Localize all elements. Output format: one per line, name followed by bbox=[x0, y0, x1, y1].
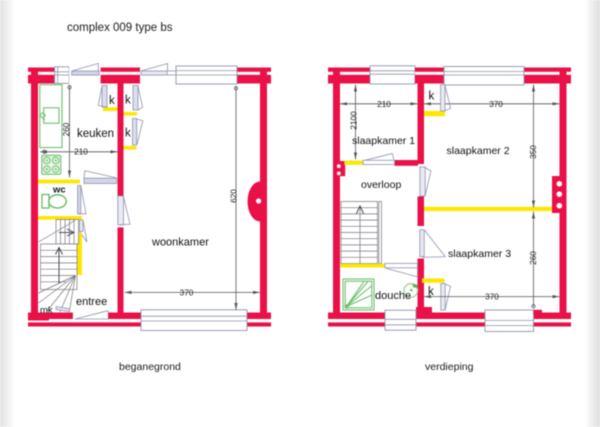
svg-text:slaapkamer 2: slaapkamer 2 bbox=[447, 145, 510, 157]
svg-text:260: 260 bbox=[528, 251, 538, 265]
svg-text:douche: douche bbox=[375, 290, 411, 302]
svg-text:entree: entree bbox=[76, 296, 107, 308]
svg-text:slaapkamer 3: slaapkamer 3 bbox=[448, 248, 511, 260]
svg-text:620: 620 bbox=[229, 189, 239, 203]
svg-text:k: k bbox=[429, 91, 435, 103]
svg-text:k: k bbox=[428, 286, 434, 298]
svg-text:k: k bbox=[109, 95, 115, 107]
svg-text:verdieping: verdieping bbox=[425, 361, 474, 373]
svg-text:210: 210 bbox=[377, 99, 391, 109]
svg-text:beganegrond: beganegrond bbox=[119, 361, 181, 373]
svg-text:k: k bbox=[125, 128, 131, 140]
svg-text:260: 260 bbox=[61, 122, 71, 136]
svg-text:slaapkamer 1: slaapkamer 1 bbox=[352, 135, 415, 147]
svg-text:370: 370 bbox=[489, 99, 503, 109]
svg-text:overloop: overloop bbox=[361, 179, 401, 191]
svg-text:woonkamer: woonkamer bbox=[151, 237, 209, 249]
svg-text:370: 370 bbox=[485, 292, 499, 302]
svg-text:keuken: keuken bbox=[77, 128, 114, 140]
svg-text:2100: 2100 bbox=[349, 111, 359, 130]
svg-text:wc: wc bbox=[52, 185, 66, 196]
svg-text:complex 009 type bs: complex 009 type bs bbox=[67, 22, 173, 34]
svg-text:210: 210 bbox=[74, 147, 88, 157]
svg-text:mk: mk bbox=[40, 305, 53, 316]
svg-text:350: 350 bbox=[528, 145, 538, 159]
svg-text:370: 370 bbox=[180, 287, 194, 297]
svg-text:k: k bbox=[125, 95, 131, 107]
